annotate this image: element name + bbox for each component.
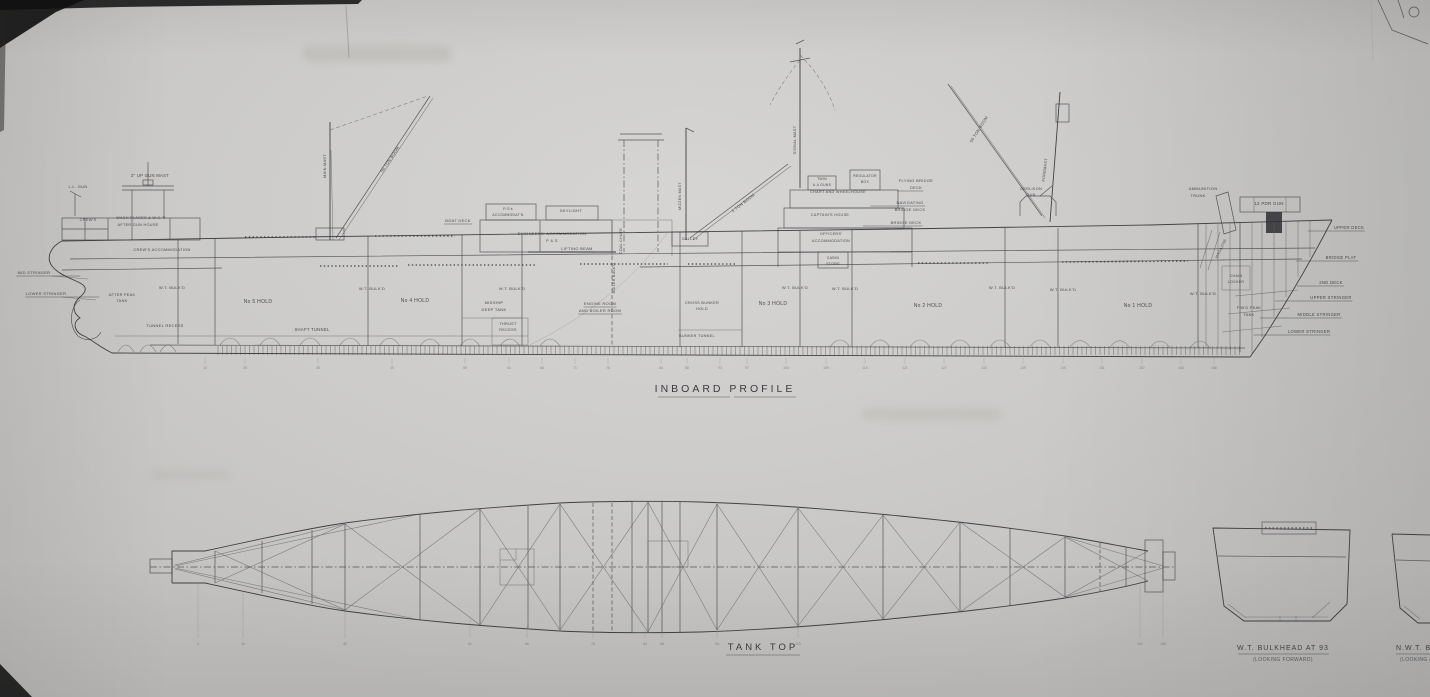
label-main-mast: MAIN MAST	[323, 154, 327, 178]
main-mast-group	[316, 96, 433, 240]
label-engineers-accommodation-1: ENGINEERS' ACCOMMODATION	[518, 231, 587, 236]
stern-stalk	[150, 559, 172, 573]
label-mid-stringer-aft: MID STRINGER	[18, 270, 51, 275]
tank-frame-number: 93	[715, 642, 719, 646]
label-ll-gun: L.L. GUN	[68, 184, 87, 189]
label-middle-stringer: MIDDLE STRINGER	[1297, 312, 1340, 317]
label-crews-accommodation: CREW'S ACCOMMODATION	[133, 247, 190, 252]
tank-frame-number: 40	[343, 642, 347, 646]
label-lower-stringer-bow: LOWER STRINGER	[1288, 329, 1330, 334]
adjacent-sheet-fragment	[1378, 0, 1428, 44]
tank-top-outline-top	[172, 501, 1148, 583]
label-chain-locker-2: LOCKER	[1228, 280, 1245, 284]
labels-layer: L.L. GUN2" UP GUN MASTCREW'SWASH PLACES …	[16, 115, 1365, 338]
profile-frame-number: 35	[316, 366, 320, 370]
label-bunker-tunnel: BUNKER TUNNEL	[679, 334, 715, 338]
profile-frame-number: 93	[718, 366, 722, 370]
bow-nub	[1163, 552, 1175, 580]
label-ammunition-trunk-1: AMMUNITION	[1189, 186, 1218, 191]
label-coal-chute: COAL CHUTE	[619, 228, 623, 254]
label-thrust-recess-1: THRUST	[499, 322, 517, 326]
wt-bulkhead-sub: (LOOKING FORWARD)	[1253, 657, 1313, 663]
label-wt-bulkd-2: W.T. BULK'D	[499, 286, 525, 291]
profile-frame-number: 121	[902, 366, 908, 370]
label-cabin-store-1: CABIN	[827, 256, 840, 260]
ship-plan-svg: INBOARD PROFILE TANK TOP W.T. BULKHEAD A…	[0, 0, 1430, 697]
label-cross-bunker-hold-2: HOLD	[696, 307, 708, 311]
label-no5-hold: No 5 HOLD	[244, 299, 273, 305]
profile-frame-number: 139	[1020, 366, 1026, 370]
label-wt-bulkd-6: W.T. BULK'D	[1050, 287, 1076, 292]
bridge-superstructure	[778, 170, 912, 268]
ll-gun-mount	[70, 191, 81, 216]
tank-frame-number: 4	[197, 642, 199, 646]
mizzen-mast-group	[672, 128, 791, 246]
wt-bulkhead-section	[1213, 522, 1350, 621]
tank-frame-number: 16	[241, 642, 245, 646]
inboard-profile-view	[49, 40, 1332, 357]
label-after-peak-tank-2: TANK	[116, 299, 127, 303]
label-wt-bulkd-7: W.T. BULK'D	[1190, 291, 1216, 296]
tank-frame-number: 103	[795, 642, 801, 646]
tank-frame-number: 84	[643, 642, 647, 646]
tank-frame-number: 88	[660, 642, 664, 646]
profile-frame-number: 133	[981, 366, 987, 370]
profile-frame-number: 88	[685, 366, 689, 370]
profile-frame-number: 66	[540, 366, 544, 370]
label-oerlikon-gun-1: OERLIKON	[1020, 187, 1042, 191]
label-chart-wheelhouse: CHART AND WHEELHOUSE	[810, 190, 866, 194]
label-lifting-beam: LIFTING BEAM	[561, 246, 592, 251]
label-no1-hold: No 1 HOLD	[1124, 303, 1153, 309]
profile-frame-number: 115	[862, 366, 868, 370]
label-engine-boiler-room-1: ENGINE ROOM	[584, 301, 616, 306]
bottom-left-corner-shadow	[0, 664, 32, 697]
rudder	[71, 300, 101, 339]
profile-frame-number: 25	[243, 366, 247, 370]
label-fifty-ton-boom-fore: 50 TON BOOM	[969, 115, 989, 144]
sheet-edge-line	[1371, 0, 1373, 60]
label-navigating-bridge-deck-1: NAVIGATING	[896, 200, 923, 205]
label-no2-hold: No 2 HOLD	[914, 303, 943, 309]
label-officers-accommodation-1: OFFICERS'	[820, 232, 843, 236]
nwt-bulkhead-caption: N.W.T. BULKHEAD	[1396, 645, 1430, 652]
profile-frame-number: 151	[1099, 366, 1105, 370]
label-skylight: SKYLIGHT	[560, 208, 582, 213]
bow-end-block	[1145, 540, 1163, 592]
label-regulator-box-2: BOX	[861, 180, 869, 184]
engine-seating-box	[648, 541, 688, 567]
tank-top-title: TANK TOP	[728, 642, 798, 653]
label-up-gun-mast: 2" UP GUN MAST	[131, 173, 169, 178]
label-midship-deep-tank-1: MIDSHIP	[485, 300, 504, 305]
label-no4-hold: No 4 HOLD	[401, 298, 430, 304]
tank-frame-number: 66	[525, 642, 529, 646]
label-ammunition-trunk-2: TRUNK	[1190, 193, 1205, 198]
label-midship-deep-tank-2: DEEP TANK	[482, 307, 507, 312]
label-engineers-accommodation-2: P & S	[546, 238, 558, 243]
label-cabin-store-2: STORE	[826, 262, 840, 266]
label-shaft-tunnel: SHAFT TUNNEL	[294, 327, 329, 332]
stern-gun-mast	[122, 162, 174, 218]
label-flying-bridge-deck-1: FLYING BRIDGE	[899, 178, 934, 183]
wt-bulkhead-caption: W.T. BULKHEAD AT 93	[1237, 645, 1329, 652]
label-wt-bulkd-3: W.T. BULK'D	[782, 285, 808, 290]
label-cross-bunker-hold-1: CROSS BUNKER	[685, 301, 719, 305]
label-wt-bulkd-5: W.T. BULK'D	[989, 285, 1015, 290]
label-boiler-bulkd: BOILER BULK'D	[612, 263, 616, 294]
second-deck-line	[70, 248, 1315, 259]
label-fwd-peak-tank-2: TANK	[1243, 313, 1254, 317]
label-crews: CREW'S	[80, 218, 97, 222]
foremast-group	[948, 84, 1069, 222]
label-bridge-deck: BRIDGE DECK	[891, 220, 922, 225]
double-bottom-hatching	[215, 346, 1240, 355]
label-wt-bulkd-4: W.T. BULK'D	[832, 286, 858, 291]
profile-frame-number: 61	[507, 366, 511, 370]
bulkhead-sections	[1213, 522, 1430, 623]
label-flying-bridge-deck-2: DECK	[910, 185, 922, 190]
engine-room-sweep	[530, 232, 668, 345]
label-fwd-peak-tank-1: F'W'D PEAK	[1237, 306, 1261, 310]
label-five-ton-boom: 5 TON BOOM	[731, 192, 756, 213]
transverse-bulkheads	[178, 222, 1240, 352]
label-no3-hold: No 3 HOLD	[759, 301, 788, 307]
label-galley: GALLEY	[682, 237, 699, 241]
tank-top-view	[150, 501, 1175, 632]
label-engine-boiler-room-2: AND BOILER ROOM	[579, 308, 621, 313]
label-wash-places: WASH PLACES & W.C.'S	[116, 216, 166, 220]
label-navigating-bridge-deck-2: BRIDGE DECK	[895, 207, 926, 212]
profile-frame-number: 103	[783, 366, 789, 370]
label-lower-stringer-aft: LOWER STRINGER	[26, 291, 67, 296]
label-after-gun-house: AFTER GUN HOUSE	[118, 223, 159, 227]
label-foremast: FOREMAST	[1042, 158, 1049, 182]
label-chain-locker-1: CHAIN	[1230, 274, 1243, 278]
label-boat-deck: BOAT DECK	[445, 218, 470, 223]
profile-frame-number: 84	[659, 366, 663, 370]
label-bridge-plat: BRIDGE PLAT	[1326, 255, 1357, 260]
inboard-profile-title: INBOARD PROFILE	[655, 383, 796, 395]
label-thrust-recess-2: RECESS	[499, 328, 517, 332]
label-regulator-box-1: REGULATOR	[853, 174, 877, 178]
signal-mast-group	[770, 40, 835, 188]
label-tunnel-recess: TUNNEL RECESS	[146, 323, 183, 328]
tank-top-outline-bottom	[172, 581, 1148, 633]
label-upper-stringer: UPPER STRINGER	[1310, 295, 1351, 300]
left-edge-shadow	[0, 9, 6, 132]
profile-frame-number: 168	[1211, 366, 1217, 370]
label-twin-aa-guns-1: TWIN	[817, 177, 827, 181]
profile-frame-number: 45	[390, 366, 394, 370]
label-second-deck: 2ND DECK	[1319, 280, 1343, 285]
label-twin-aa-guns-2: A.A GUNS	[813, 183, 832, 187]
label-captains-house: CAPTAIN'S HOUSE	[811, 213, 850, 217]
tank-frame-number: 76	[591, 642, 595, 646]
label-after-peak-tank-1: AFTER PEAK	[109, 293, 136, 297]
label-fifty-ton-boom-main: 50 TON BOOM	[379, 145, 400, 173]
boat-deck-house	[480, 204, 616, 252]
label-mizzen-mast: MIZZEN MAST	[678, 182, 682, 210]
aft-deck-line	[62, 268, 222, 270]
tank-frame-number: 61	[468, 642, 472, 646]
tank-frame-number: 168	[1160, 642, 1166, 646]
profile-frame-number: 109	[823, 366, 829, 370]
label-upper-deck-bow: UPPER DECK	[1334, 225, 1364, 230]
label-oerlikon-gun-2: GUN	[1026, 193, 1035, 197]
nwt-bulkhead-sub: (LOOKING FORWARD)	[1400, 657, 1430, 663]
label-wt-bulkd-0: W.T. BULK'D	[159, 285, 185, 290]
label-pos-accommodation-2: ACCOMMODAT'N	[492, 213, 524, 217]
label-wt-bulkd-1: W.T. BULK'D	[359, 286, 385, 291]
hatch-coamings	[245, 236, 1188, 266]
profile-frame-number: 157	[1139, 366, 1145, 370]
label-twelve-pdr-gun: 12 PDR GUN	[1254, 201, 1283, 206]
profile-frame-number: 76	[606, 366, 610, 370]
nwt-bulkhead-section	[1392, 534, 1430, 623]
label-officers-accommodation-2: ACCOMMODATION	[812, 239, 850, 243]
profile-frame-number: 55	[463, 366, 467, 370]
paper-fold-line	[346, 6, 349, 58]
profile-frame-number: 97	[745, 366, 749, 370]
profile-frame-number: 71	[573, 366, 577, 370]
label-signal-mast: SIGNAL MAST	[793, 125, 797, 154]
profile-frame-number: 127	[941, 366, 947, 370]
photographed-ship-plan: { "drawing": { "profile_title": "INBOARD…	[0, 0, 1430, 697]
profile-frame-number: 145	[1060, 366, 1066, 370]
profile-frame-number: 15	[203, 366, 207, 370]
stem-line	[1250, 220, 1332, 357]
tank-frame-number: 162	[1137, 642, 1143, 646]
profile-frame-number: 163	[1178, 366, 1184, 370]
label-pos-accommodation-1: P.O's	[503, 207, 513, 211]
